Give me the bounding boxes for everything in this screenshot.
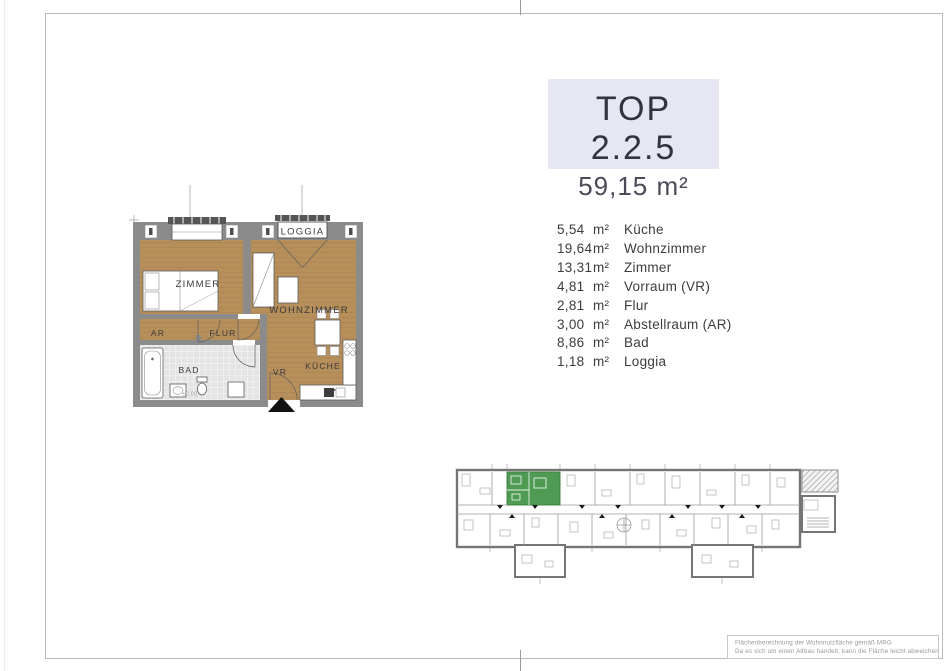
fold-mark-top — [520, 0, 521, 15]
zimmer-label: ZIMMER — [176, 279, 221, 290]
room-area-value: 4,81 — [557, 278, 593, 297]
room-area-value: 5,54 — [557, 221, 593, 240]
room-area-list: 5,54m²Küche 19,64m²Wohnzimmer 13,31m²Zim… — [557, 221, 732, 372]
room-name: Bad — [624, 334, 649, 353]
room-area-value: 2,81 — [557, 297, 593, 316]
unit-number: TOP 2.2.5 — [548, 90, 719, 168]
room-area-unit: m² — [593, 334, 624, 353]
washer-symbol — [228, 382, 244, 397]
loggia-railing: LOGGIA — [275, 215, 330, 238]
flur-label: FLUR — [210, 328, 237, 338]
room-area-unit: m² — [593, 221, 624, 240]
room-area-unit: m² — [593, 316, 624, 335]
loggia-label: LOGGIA — [281, 227, 325, 238]
room-list-item: 2,81m²Flur — [557, 297, 732, 316]
building-wing-left — [515, 545, 565, 577]
toilet-symbol — [197, 377, 207, 395]
room-list-item: 4,81m²Vorraum (VR) — [557, 278, 732, 297]
vr-label: VR — [273, 367, 287, 377]
room-area-value: 3,00 — [557, 316, 593, 335]
unit-title-box: TOP 2.2.5 59,15 m² — [548, 79, 719, 169]
room-name: Abstellraum (AR) — [624, 316, 732, 335]
room-name: Vorraum (VR) — [624, 278, 710, 297]
wohnzimmer-label: WOHNZIMMER — [269, 305, 349, 316]
bed-symbol — [143, 271, 218, 311]
footnote-line-1: Flächenberechnung der Wohnnutzfläche gem… — [735, 638, 939, 647]
scan-edge-line — [4, 0, 5, 671]
bathtub-symbol — [142, 348, 163, 398]
kueche-label: KÜCHE — [305, 361, 341, 371]
room-name: Loggia — [624, 353, 666, 372]
room-list-item: 8,86m²Bad — [557, 334, 732, 353]
building-wing-right — [692, 545, 753, 577]
room-name: Wohnzimmer — [624, 240, 706, 259]
building-overview-plan — [452, 460, 847, 590]
zimmer-window — [168, 217, 226, 240]
highlighted-unit — [507, 472, 560, 505]
room-area-value: 8,86 — [557, 334, 593, 353]
room-name: Zimmer — [624, 259, 672, 278]
stairwell-symbol — [617, 518, 631, 532]
room-list-item: 19,64m²Wohnzimmer — [557, 240, 732, 259]
room-area-unit: m² — [593, 259, 624, 278]
bad-label: BAD — [178, 365, 199, 375]
room-list-item: 1,18m²Loggia — [557, 353, 732, 372]
room-area-unit: m² — [593, 353, 624, 372]
footnote-box: Flächenberechnung der Wohnnutzfläche gem… — [727, 635, 939, 659]
ar-label: AR — [151, 328, 165, 338]
document-page: TOP 2.2.5 59,15 m² 5,54m²Küche 19,64m²Wo… — [0, 0, 950, 671]
room-area-unit: m² — [593, 278, 624, 297]
room-area-unit: m² — [593, 240, 624, 259]
unit-total-area: 59,15 m² — [548, 171, 719, 202]
building-annex — [802, 496, 835, 532]
room-name: Küche — [624, 221, 664, 240]
room-area-value: 1,18 — [557, 353, 593, 372]
room-name: Flur — [624, 297, 648, 316]
room-area-value: 13,31 — [557, 259, 593, 278]
room-area-unit: m² — [593, 297, 624, 316]
room-list-item: 3,00m²Abstellraum (AR) — [557, 316, 732, 335]
fold-mark-bottom — [520, 650, 521, 671]
adjacent-roof-hatch — [802, 470, 838, 492]
room-area-value: 19,64 — [557, 240, 593, 259]
footnote-line-2: Da es sich um einen Altbau handelt, kann… — [735, 647, 939, 656]
apartment-floor-plan: LOGGIA — [128, 183, 368, 415]
floor-level-label: ±0.00 — [183, 392, 198, 398]
room-list-item: 5,54m²Küche — [557, 221, 732, 240]
room-list-item: 13,31m²Zimmer — [557, 259, 732, 278]
